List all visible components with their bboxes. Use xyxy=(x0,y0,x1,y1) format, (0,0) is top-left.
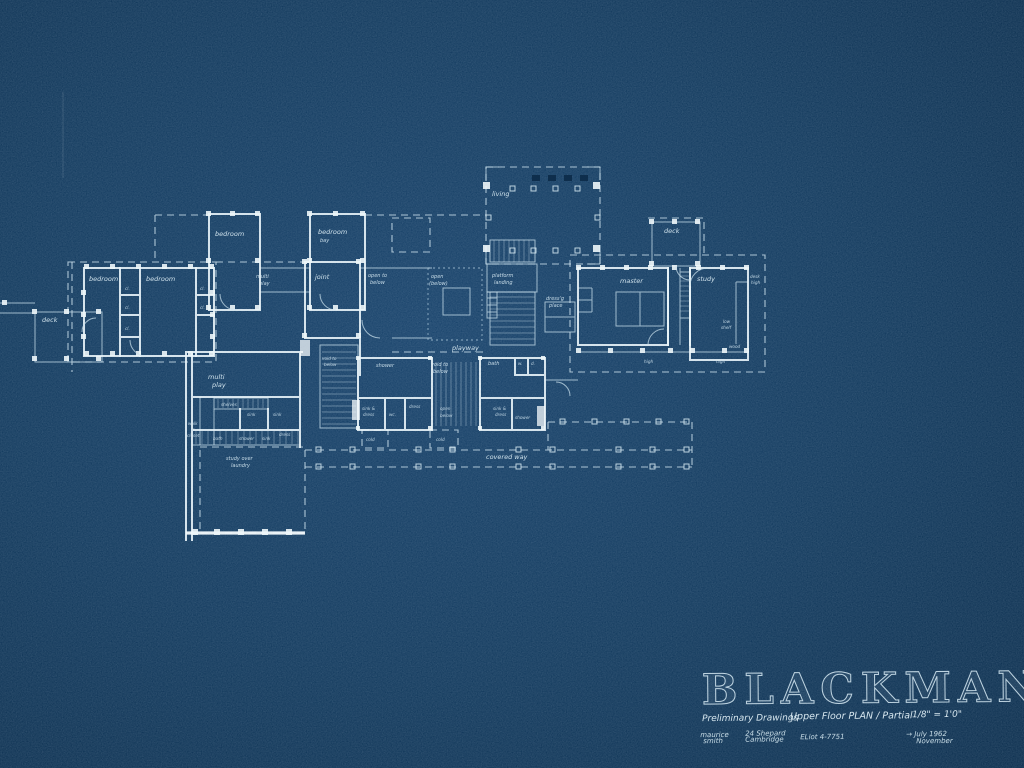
project-name: BLACKMAN xyxy=(702,662,1024,714)
drawing-set-label: Preliminary Drawings xyxy=(702,713,799,724)
label-w: w. xyxy=(518,361,523,366)
blueprint-sheet: living deck bedroom bedroom cl. cl. cl. … xyxy=(0,0,1024,768)
label-sink-3: sink xyxy=(247,412,256,417)
label-covered-way: covered way xyxy=(486,453,528,461)
paper-texture xyxy=(0,0,1024,768)
label-low-shelf-a: low xyxy=(723,319,731,324)
label-landing: landing xyxy=(494,280,513,286)
architect-last-name: smith xyxy=(703,737,723,745)
date-secondary: November xyxy=(916,737,954,745)
label-desk-high-a: desk xyxy=(750,274,760,279)
label-sink-5: sink xyxy=(262,436,271,441)
room-label-bedroom-1: bedroom xyxy=(89,275,118,283)
room-label-multiplay-1b: play xyxy=(258,281,271,287)
label-void-below-a: void to xyxy=(431,362,448,368)
label-cold-2: cold xyxy=(436,437,445,442)
room-label-bedroom-3: bedroom xyxy=(215,230,244,238)
label-walkin-b: in xyxy=(191,427,195,432)
label-walkin-c: closet xyxy=(187,433,200,438)
label-high-2: high xyxy=(644,359,653,364)
room-label-multiplay-2a: multi xyxy=(208,373,225,381)
label-playway: playway xyxy=(451,344,479,352)
label-platform: platform xyxy=(491,273,513,279)
label-walkin-a: walk xyxy=(188,421,198,426)
room-label-deck-right: deck xyxy=(664,227,680,235)
room-label-study: study xyxy=(697,275,715,283)
label-dress-2: dress xyxy=(409,404,421,409)
label-dress-3: dress xyxy=(279,432,291,437)
label-study-over: study over xyxy=(226,456,254,462)
label-open-below-2a: open xyxy=(440,406,451,411)
room-label-bedroom-2: bedroom xyxy=(146,275,175,283)
label-open-to-below-b: below xyxy=(370,280,386,286)
room-label-master: master xyxy=(620,277,644,285)
label-bath-2: bath xyxy=(213,436,223,441)
sheet-title: Upper Floor PLAN / Partial xyxy=(790,710,913,722)
label-shower-2: shower xyxy=(515,415,530,420)
label-sink-dress-2b: dress xyxy=(495,412,507,417)
label-cold-1: cold xyxy=(366,437,375,442)
room-label-multiplay-2b: play xyxy=(211,381,226,389)
label-wood: wood xyxy=(729,344,741,349)
label-sink-dress-2a: sink & xyxy=(493,406,507,411)
label-void-below-3b: below xyxy=(324,362,337,367)
label-high-1: high xyxy=(716,359,725,364)
closet-label-1: cl. xyxy=(125,286,130,291)
room-label-bedroom-4: bedroom xyxy=(318,228,347,236)
label-shower-1: shower xyxy=(376,363,395,369)
label-wc: wc. xyxy=(389,412,396,417)
label-open-to-below-a: open to xyxy=(368,273,387,279)
room-label-deck-left: deck xyxy=(42,316,58,324)
label-sink-dress-1b: dress xyxy=(363,412,375,417)
label-open-below-2b: below xyxy=(440,413,453,418)
label-low-shelf-b: shelf xyxy=(721,325,732,330)
room-label-living: living xyxy=(492,190,510,198)
label-open-below-a: open xyxy=(431,274,443,280)
label-sink-dress-1a: sink & xyxy=(362,406,376,411)
label-shower-3: shower xyxy=(239,436,254,441)
blueprint-drawing: living deck bedroom bedroom cl. cl. cl. … xyxy=(0,0,1024,768)
label-void-below-b: below xyxy=(433,369,449,375)
room-label-multiplay-1a: multi xyxy=(256,274,269,280)
room-label-bedroom-4-bay: bay xyxy=(320,238,330,244)
address-city: Cambridge xyxy=(745,735,784,743)
phone-number: ELiot 4-7751 xyxy=(800,733,844,741)
label-desk-high-b: high xyxy=(751,280,760,285)
closet-label-2: cl. xyxy=(125,305,130,310)
label-bath-1: bath xyxy=(488,361,499,367)
label-sink-4: sink xyxy=(273,412,282,417)
label-open-below-b: (below) xyxy=(429,281,448,287)
label-shelves: shelves xyxy=(221,402,238,407)
closet-label-4: cl. xyxy=(200,286,205,291)
label-d: d. xyxy=(531,361,535,366)
label-dressing-a: dress'g xyxy=(546,296,564,302)
label-void-below-3a: void to xyxy=(322,356,337,361)
label-laundry: laundry xyxy=(231,463,251,469)
scale-note: 1/8" = 1'0" xyxy=(912,710,962,720)
room-label-joint: joint xyxy=(314,273,330,281)
label-dressing-b: place xyxy=(548,303,562,309)
closet-label-5: cl. xyxy=(200,305,205,310)
closet-label-3: cl. xyxy=(125,326,130,331)
